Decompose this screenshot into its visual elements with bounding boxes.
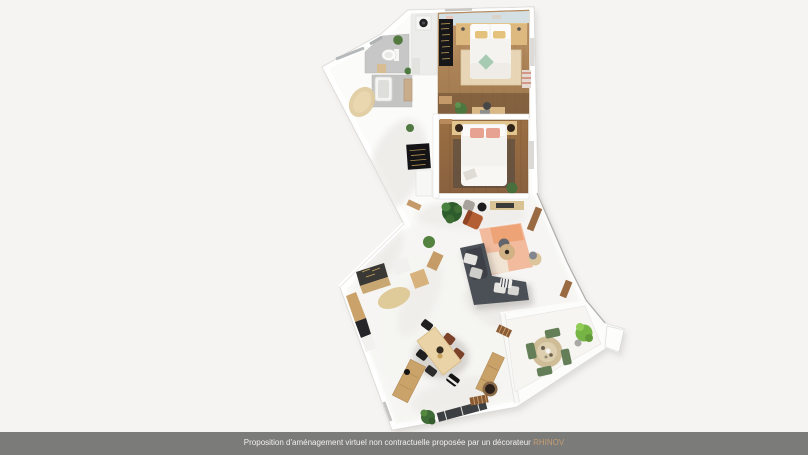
- svg-text:Proposition d'aménagement virt: Proposition d'aménagement virtuel non co…: [244, 438, 565, 447]
